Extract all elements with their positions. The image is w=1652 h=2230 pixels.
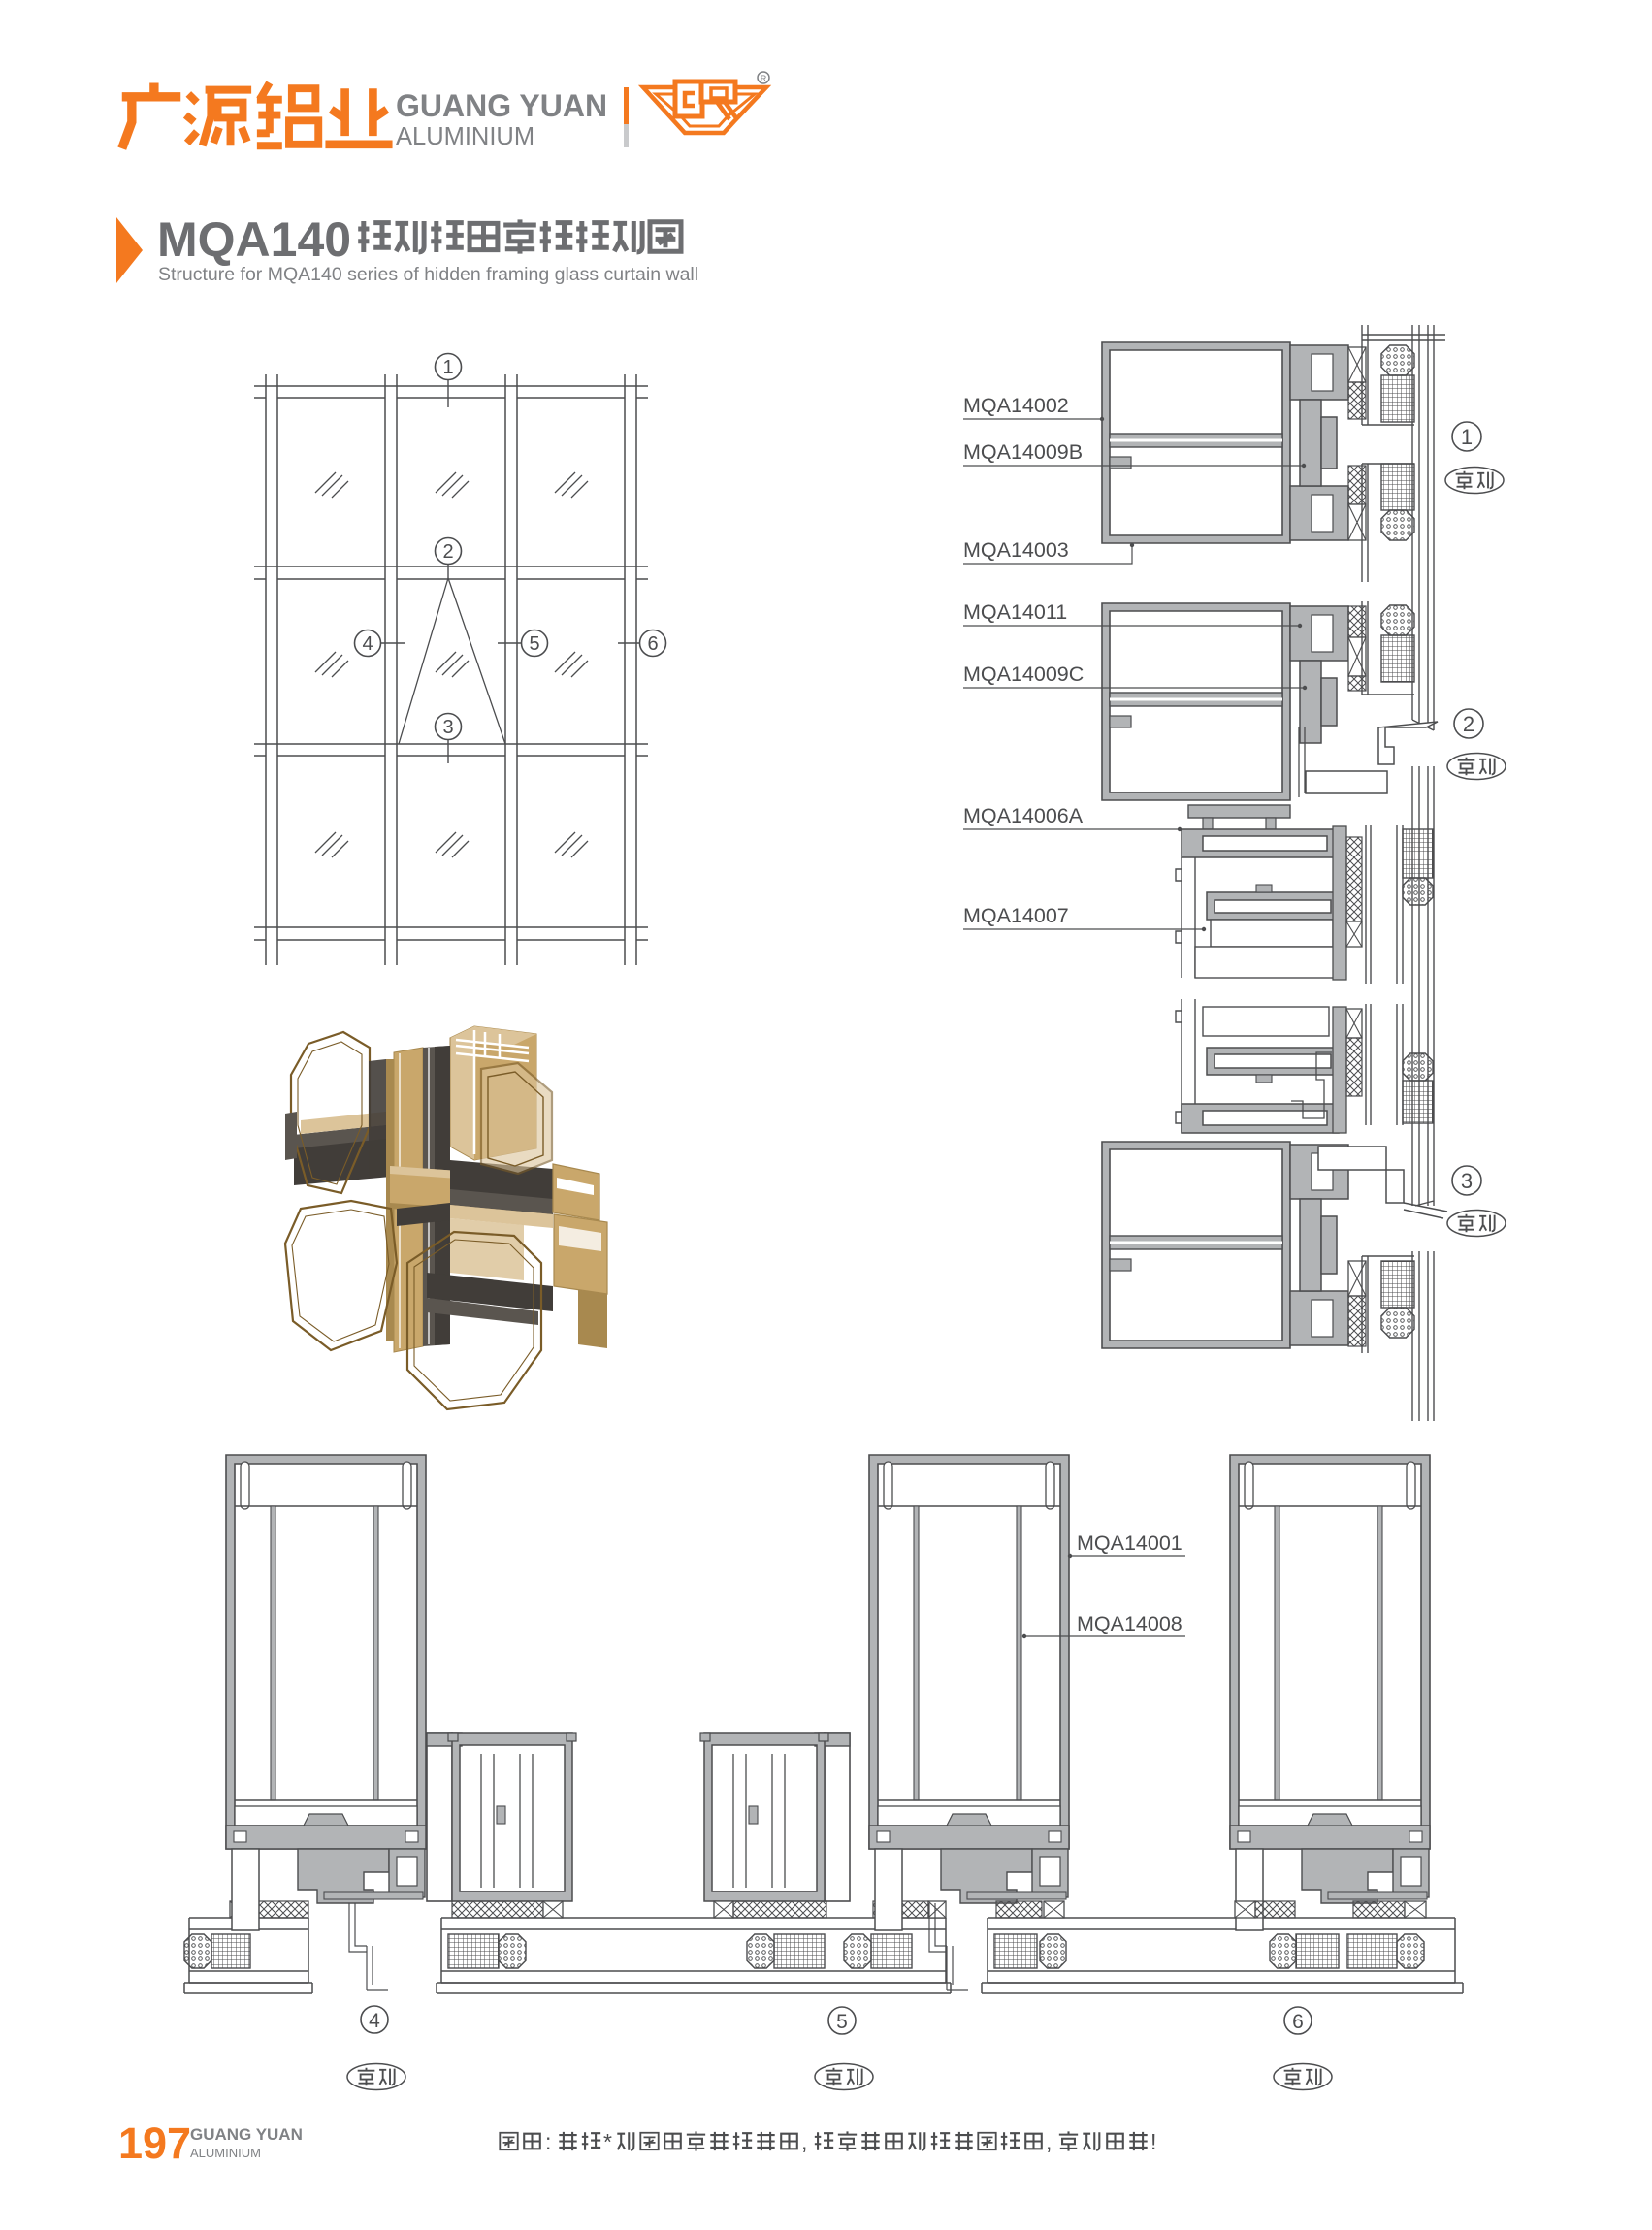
svg-text:,: , [1046,2129,1052,2154]
svg-text:2: 2 [442,541,453,563]
svg-text:6: 6 [647,633,658,655]
svg-text:MQA14009C: MQA14009C [963,663,1084,686]
svg-text:GUANG YUAN: GUANG YUAN [190,2125,303,2144]
svg-text:R: R [761,74,767,83]
svg-text:5: 5 [836,2011,848,2033]
svg-text:MQA14002: MQA14002 [963,394,1069,417]
svg-text:3: 3 [1461,1169,1473,1193]
svg-text:ALUMINIUM: ALUMINIUM [396,123,534,150]
svg-text:Structure for MQA140 series of: Structure for MQA140 series of hidden fr… [158,264,698,285]
svg-text:GUANG YUAN: GUANG YUAN [396,88,607,123]
svg-text:1: 1 [442,357,453,378]
svg-text:4: 4 [362,633,373,655]
svg-text:197: 197 [118,2118,191,2168]
svg-text:6: 6 [1292,2011,1304,2033]
svg-text:ALUMINIUM: ALUMINIUM [190,2146,261,2160]
svg-text:MQA14007: MQA14007 [963,904,1069,927]
svg-text:MQA140: MQA140 [157,212,351,267]
svg-text:1: 1 [1461,425,1473,449]
svg-text:MQA14001: MQA14001 [1077,1532,1182,1555]
svg-text:MQA14008: MQA14008 [1077,1612,1182,1635]
svg-text:MQA14009B: MQA14009B [963,440,1083,464]
svg-text:MQA14006A: MQA14006A [963,804,1084,827]
svg-text:4: 4 [369,2010,380,2032]
svg-text:MQA14003: MQA14003 [963,538,1069,562]
svg-text:!: ! [1150,2129,1156,2154]
svg-text:5: 5 [529,633,539,655]
svg-text:3: 3 [442,717,453,738]
svg-text::: : [545,2129,551,2154]
svg-text:*: * [603,2129,612,2154]
svg-text:MQA14011: MQA14011 [963,600,1067,624]
svg-text:2: 2 [1463,712,1474,736]
svg-text:,: , [801,2129,807,2154]
